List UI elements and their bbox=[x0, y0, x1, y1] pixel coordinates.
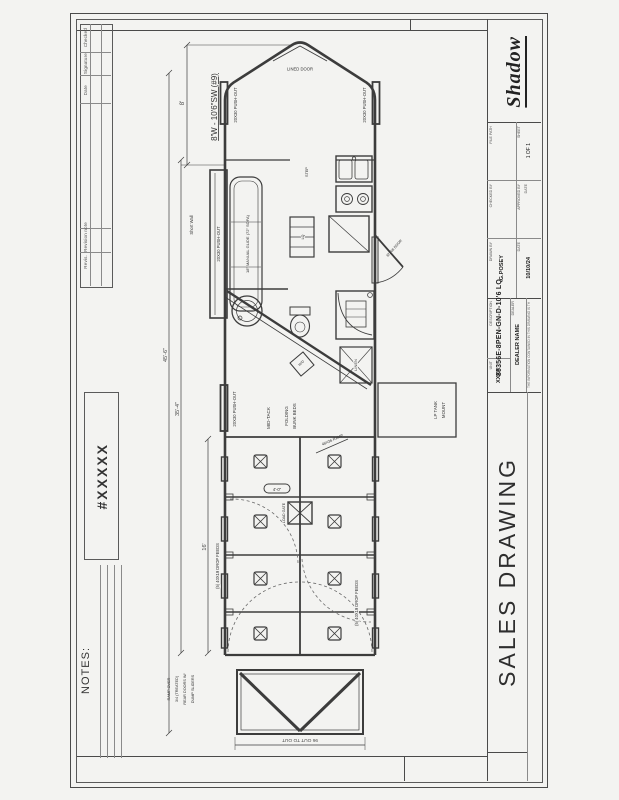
revision-table-line bbox=[101, 24, 102, 286]
checked-by-cell: CHECKED BY bbox=[488, 180, 516, 238]
bathroom bbox=[225, 289, 374, 389]
notes-rule bbox=[107, 565, 108, 758]
notes-rule bbox=[114, 565, 115, 758]
toilet bbox=[291, 315, 310, 337]
dim-nose-length: 8' bbox=[180, 101, 186, 105]
checked-by-label: CHECKED BY bbox=[489, 184, 493, 207]
approved-by-cell: APPROVED BY DATE bbox=[516, 180, 541, 238]
dim-box-length: 35'-4" bbox=[175, 402, 181, 416]
notes-label-wrap: NOTES: bbox=[78, 625, 94, 715]
stall-dividers bbox=[225, 437, 375, 655]
drawn-by-value: G.POSEY bbox=[499, 255, 505, 280]
window-label: 20X30 PUSH-OUT bbox=[362, 87, 367, 123]
date-label: DATE bbox=[517, 242, 521, 251]
wardrobe bbox=[336, 291, 374, 339]
lp-tank-label: MOUNT bbox=[441, 402, 446, 418]
drop-feeds-label: (5) 40X19 DROP FEEDS bbox=[215, 543, 220, 589]
lp-tank-label: LP TANK bbox=[433, 401, 438, 419]
revision-header-date: Date bbox=[80, 77, 91, 103]
dim-stall-length: 16' bbox=[202, 543, 208, 550]
bunk-beds-label: BUNK BEDS bbox=[292, 403, 297, 428]
gate-width-label: 4'-0" bbox=[273, 487, 282, 492]
revision-table-line bbox=[80, 75, 111, 76]
window-label: 20X30 PUSH-OUT bbox=[232, 391, 237, 427]
nose-door-label: LINED DOOR bbox=[287, 67, 313, 72]
ramp-callout-label: 48X36 RAMP bbox=[321, 433, 344, 446]
load-gate-label: LOAD GATE bbox=[282, 502, 286, 523]
date-cell: DATE 10/10/24 bbox=[516, 238, 541, 298]
revision-header-signature: Signature bbox=[80, 52, 91, 75]
model-cell: DESCRIPTION 80356E-8PEN-GN-D-10'6 LQ bbox=[488, 298, 510, 358]
approved-date-label: DATE bbox=[524, 184, 528, 193]
sheet-value: 1 OF 1 bbox=[526, 143, 532, 158]
bunk-beds-label: FOLDING bbox=[284, 406, 289, 426]
job-number: #XXXXX bbox=[94, 443, 110, 509]
notes-label: NOTES: bbox=[80, 647, 92, 694]
linen-label: LINEN bbox=[353, 359, 358, 371]
titleblock-line bbox=[487, 752, 527, 753]
unit-value: XXXX bbox=[496, 368, 502, 383]
revision-header-rev: Revis. bbox=[80, 252, 91, 272]
sales-drawing-cell: SALES DRAWING bbox=[488, 392, 527, 752]
dim-overall-length: 45'-6" bbox=[163, 348, 169, 362]
model-callout: 8'W - 10'6"SW (#9) bbox=[210, 73, 219, 141]
cooktop bbox=[336, 186, 372, 212]
titleblock-line bbox=[527, 392, 528, 781]
unit-cell: UNIT XXXX bbox=[488, 358, 510, 392]
sales-drawing-title: SALES DRAWING bbox=[494, 457, 521, 687]
toilet-tank bbox=[290, 307, 310, 315]
wd-label: W/D bbox=[298, 359, 306, 367]
dealer-cell: DEALER DEALER NAME bbox=[510, 298, 526, 392]
dimension-lines bbox=[166, 42, 365, 750]
drawn-by-label: DRAWN BY bbox=[489, 242, 493, 261]
ramp-note-line: 3/4 (TREATED) bbox=[175, 675, 179, 702]
step-label: STEP bbox=[305, 167, 309, 177]
scanned-sales-drawing-sheet: Checked Signature Date Revision note Rev… bbox=[0, 0, 619, 800]
trailer-floor-plan: 8' 45'-6" 35'-4" 16' 96 OUT TO OUT 8'W -… bbox=[140, 25, 480, 770]
shadow-logo: Shadow bbox=[503, 36, 526, 108]
job-number-box: #XXXXX bbox=[84, 392, 119, 560]
window-label: 20X30 PUSH-OUT bbox=[233, 87, 238, 123]
dim-rear-width: 96 OUT TO OUT bbox=[282, 737, 318, 743]
table-label: LQ bbox=[301, 234, 305, 239]
sofa-label: 18" MANUAL GLIDE (72" SOFA) bbox=[245, 214, 250, 273]
short-wall-label: Short Wall bbox=[189, 215, 194, 234]
ramp-note-line: REAR DOORS W/ bbox=[183, 672, 187, 704]
ramp-note-line: RAMP OVER bbox=[167, 677, 171, 700]
file-path-cell: FILE PATH bbox=[488, 122, 516, 180]
dealer-value: DEALER NAME bbox=[515, 324, 521, 365]
entry-door-label: 32X68 DOOR bbox=[385, 238, 403, 257]
unit-label: UNIT bbox=[489, 361, 493, 369]
notes-rule bbox=[121, 565, 122, 758]
brand-logo-cell: Shadow bbox=[490, 24, 538, 120]
date-value: 10/10/24 bbox=[526, 257, 532, 279]
window-label: 20X30 PUSH-OUT bbox=[216, 226, 221, 262]
disclaimer-text: THE INFORMATION CONTAINED IN THIS DRAWIN… bbox=[527, 302, 541, 388]
approved-by-label: APPROVED BY bbox=[517, 184, 521, 210]
revision-header-note: Revision note bbox=[80, 222, 91, 252]
notes-rule bbox=[100, 565, 101, 758]
revision-table-line bbox=[80, 103, 111, 104]
kitchen-sink bbox=[336, 156, 372, 182]
sheet-cell: SHEET 1 OF 1 bbox=[516, 122, 541, 180]
rear-ramp bbox=[237, 670, 363, 734]
revision-header-checked: Checked bbox=[80, 26, 91, 50]
drop-feeds-label: (5) 40X19 DROP FEEDS bbox=[354, 580, 359, 626]
midtack-label: MID-TACK bbox=[266, 406, 271, 429]
sheet-label: SHEET bbox=[517, 126, 521, 138]
description-label: DESCRIPTION bbox=[489, 301, 493, 326]
dealer-label: DEALER bbox=[511, 301, 515, 315]
nose-windows bbox=[221, 82, 380, 124]
file-path-label: FILE PATH bbox=[489, 126, 493, 144]
refrigerator bbox=[329, 216, 369, 252]
disclaimer-cell: THE INFORMATION CONTAINED IN THIS DRAWIN… bbox=[526, 300, 541, 390]
ramp-note-line: DUMP SLIDERS bbox=[191, 674, 195, 703]
